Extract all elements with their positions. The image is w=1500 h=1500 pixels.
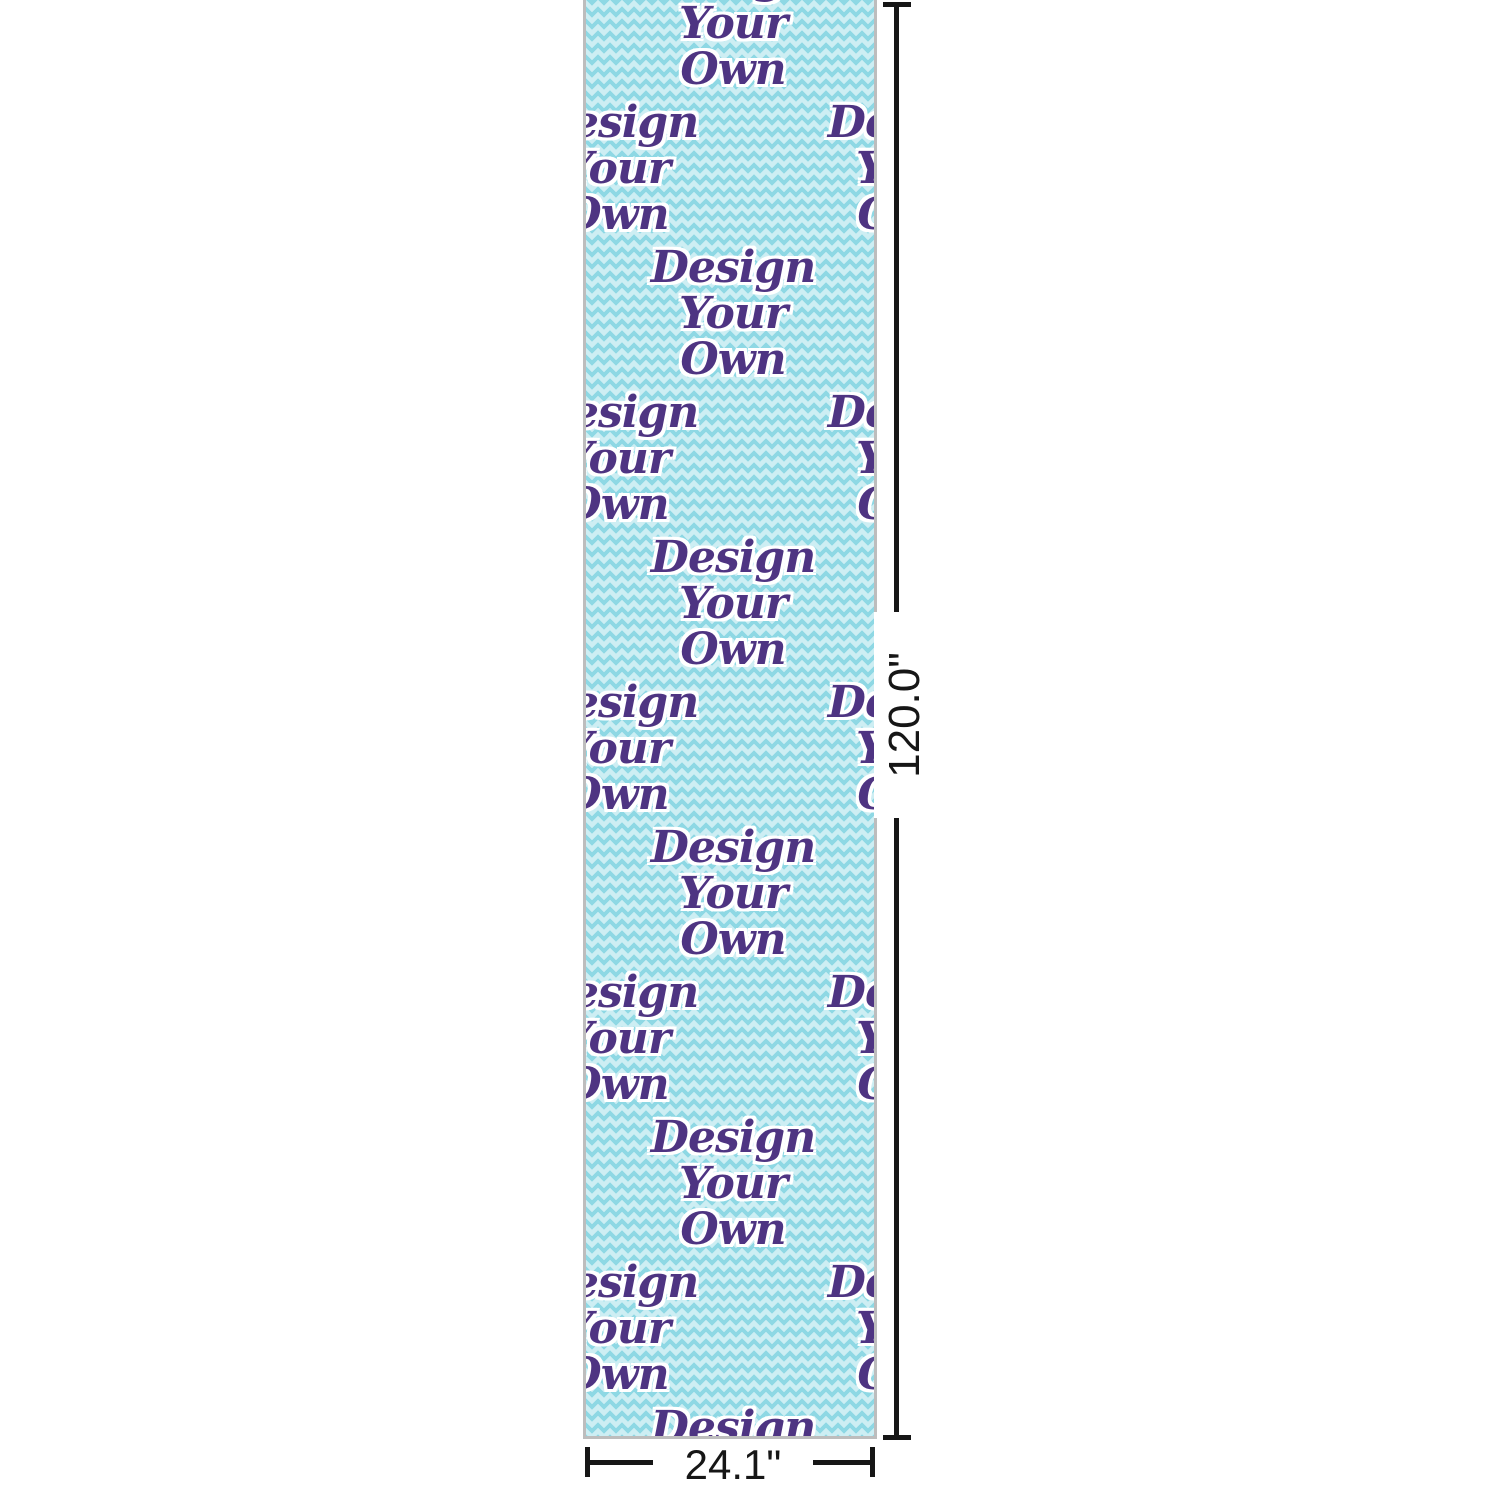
pattern-word: Your bbox=[648, 291, 818, 337]
pattern-block: DesignYourOwn bbox=[825, 680, 877, 818]
pattern-word: Your bbox=[648, 1161, 818, 1207]
pattern-word: Design bbox=[583, 1260, 701, 1306]
height-dimension-bottom-cap bbox=[883, 1435, 911, 1440]
pattern-word: Your bbox=[648, 1, 818, 47]
pattern-word: Design bbox=[648, 535, 818, 581]
pattern-word: Your bbox=[825, 726, 877, 772]
pattern-word: Design bbox=[583, 100, 701, 146]
pattern-word: Your bbox=[583, 726, 701, 772]
pattern-block: DesignYourOwn bbox=[825, 1260, 877, 1398]
pattern-block: DesignYourOwn bbox=[825, 970, 877, 1108]
pattern-block: DesignYourOwn bbox=[648, 825, 818, 963]
pattern-block: DesignYourOwn bbox=[583, 1260, 701, 1398]
pattern-word: Design bbox=[825, 390, 877, 436]
pattern-block: DesignYourOwn bbox=[648, 1115, 818, 1253]
pattern-block: DesignYourOwn bbox=[583, 970, 701, 1108]
width-dimension-value: 24.1" bbox=[685, 1441, 782, 1489]
pattern-word: Design bbox=[825, 970, 877, 1016]
pattern-word: Your bbox=[648, 871, 818, 917]
pattern-word: Your bbox=[825, 1016, 877, 1062]
pattern-word: Own bbox=[583, 1352, 701, 1398]
height-dimension-top-cap bbox=[883, 2, 911, 7]
pattern-word: Design bbox=[648, 1405, 818, 1439]
pattern-word: Your bbox=[583, 436, 701, 482]
pattern-word: Design bbox=[825, 1260, 877, 1306]
pattern-block: DesignYourOwn bbox=[825, 100, 877, 238]
pattern-block: DesignYourOwn bbox=[583, 680, 701, 818]
pattern-word: Your bbox=[825, 146, 877, 192]
pattern-word: Own bbox=[583, 482, 701, 528]
pattern-word: Own bbox=[825, 192, 877, 238]
pattern-word: Design bbox=[583, 970, 701, 1016]
pattern-word: Design bbox=[583, 680, 701, 726]
width-dimension-left-cap bbox=[585, 1447, 590, 1477]
product-strip: DesignYourOwnDesignYourOwnDesignYourOwnD… bbox=[583, 0, 877, 1439]
pattern-word: Own bbox=[648, 337, 818, 383]
pattern-block: DesignYourOwn bbox=[825, 390, 877, 528]
pattern-word: Design bbox=[648, 1115, 818, 1161]
pattern-word: Your bbox=[583, 1016, 701, 1062]
height-dimension-label: 120.0" bbox=[874, 612, 936, 818]
pattern-word: Own bbox=[825, 482, 877, 528]
pattern-block: DesignYourOwn bbox=[648, 0, 818, 93]
pattern-word: Own bbox=[825, 772, 877, 818]
pattern-word: Design bbox=[825, 680, 877, 726]
pattern-word: Design bbox=[825, 100, 877, 146]
pattern-word: Own bbox=[583, 192, 701, 238]
pattern-word: Own bbox=[825, 1352, 877, 1398]
pattern-block: DesignYourOwn bbox=[648, 535, 818, 673]
pattern-block: DesignYourOwn bbox=[648, 245, 818, 383]
pattern-block: DesignYourOwn bbox=[583, 390, 701, 528]
pattern-word: Your bbox=[825, 436, 877, 482]
height-dimension-value: 120.0" bbox=[880, 652, 930, 778]
product-preview-canvas: DesignYourOwnDesignYourOwnDesignYourOwnD… bbox=[0, 0, 1500, 1500]
pattern-word: Your bbox=[583, 146, 701, 192]
pattern-word: Own bbox=[583, 772, 701, 818]
width-dimension-right-cap bbox=[870, 1447, 875, 1477]
pattern-word: Own bbox=[648, 917, 818, 963]
pattern-word: Own bbox=[648, 47, 818, 93]
pattern-word: Own bbox=[825, 1062, 877, 1108]
pattern-word: Your bbox=[648, 581, 818, 627]
pattern-word: Own bbox=[648, 1207, 818, 1253]
pattern-block: DesignYourOwn bbox=[648, 1405, 818, 1439]
pattern-block: DesignYourOwn bbox=[583, 100, 701, 238]
pattern-word: Own bbox=[648, 627, 818, 673]
pattern-word: Your bbox=[583, 1306, 701, 1352]
width-dimension-label: 24.1" bbox=[653, 1440, 813, 1490]
pattern-word: Design bbox=[648, 825, 818, 871]
pattern-word: Your bbox=[825, 1306, 877, 1352]
pattern-word: Design bbox=[583, 390, 701, 436]
pattern-word: Design bbox=[648, 245, 818, 291]
pattern-word: Own bbox=[583, 1062, 701, 1108]
